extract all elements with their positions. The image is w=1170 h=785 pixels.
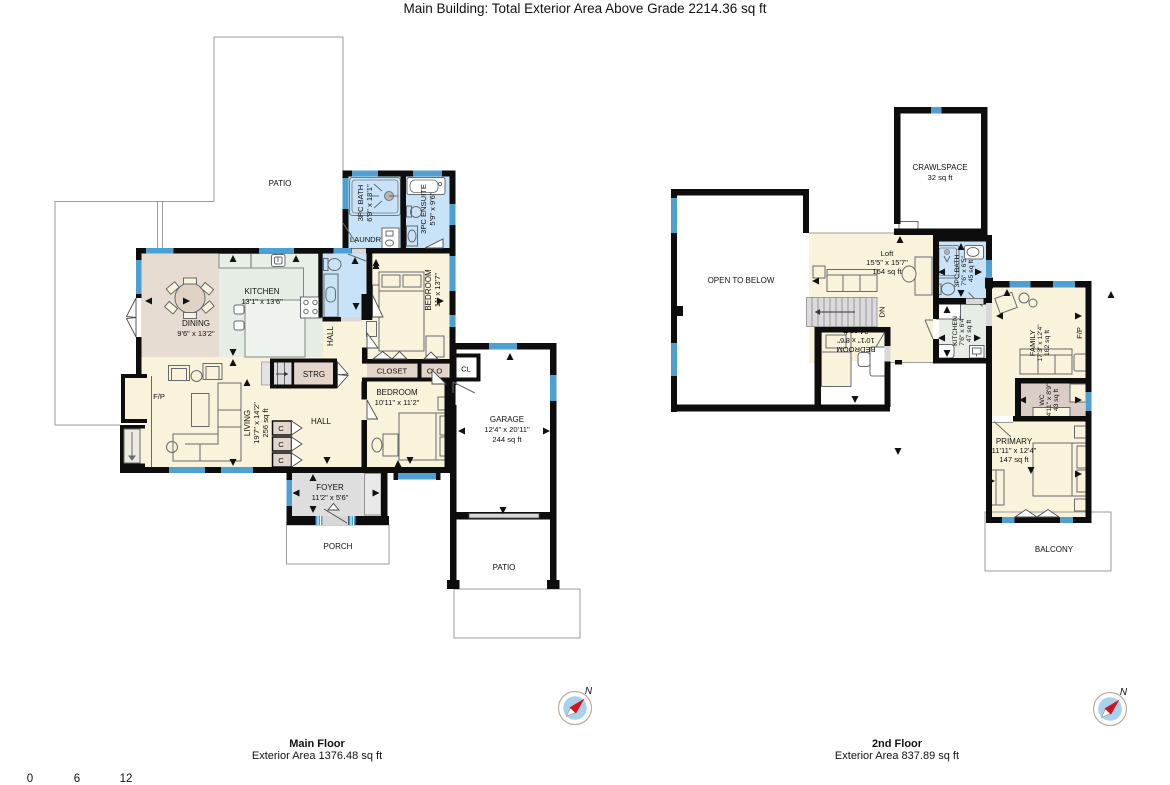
svg-text:10'11" x 11'2": 10'11" x 11'2": [375, 398, 420, 407]
svg-text:6'9" x 18'1": 6'9" x 18'1": [365, 184, 374, 222]
svg-text:47 sq ft: 47 sq ft: [966, 320, 973, 342]
svg-text:45 sq ft: 45 sq ft: [968, 260, 975, 282]
svg-text:Exterior Area 837.89 sq ft: Exterior Area 837.89 sq ft: [835, 750, 959, 762]
svg-text:N: N: [1120, 687, 1128, 698]
svg-text:7'6" x 6'5": 7'6" x 6'5": [961, 256, 968, 286]
svg-text:0: 0: [27, 773, 33, 785]
svg-text:162 sq ft: 162 sq ft: [1044, 330, 1051, 356]
svg-text:164 sq ft: 164 sq ft: [872, 267, 902, 276]
svg-text:12: 12: [120, 773, 133, 785]
svg-text:FOYER: FOYER: [316, 483, 344, 492]
svg-text:11'11" x 12'4": 11'11" x 12'4": [992, 446, 1037, 455]
svg-text:Loft: Loft: [881, 249, 895, 258]
svg-text:KITCHEN: KITCHEN: [952, 316, 959, 346]
svg-text:CL: CL: [461, 365, 471, 374]
svg-text:Exterior Area 1376.48 sq ft: Exterior Area 1376.48 sq ft: [252, 750, 382, 762]
svg-text:43 sq ft: 43 sq ft: [1053, 389, 1060, 411]
svg-text:BEDROOM: BEDROOM: [376, 388, 418, 397]
svg-text:F/P: F/P: [1075, 327, 1084, 339]
svg-text:BALCONY: BALCONY: [1035, 545, 1074, 554]
svg-text:PATIO: PATIO: [269, 179, 292, 188]
svg-text:12'4" x 20'11": 12'4" x 20'11": [484, 425, 530, 434]
svg-text:F/P: F/P: [153, 392, 165, 401]
svg-text:HALL: HALL: [311, 417, 332, 426]
svg-text:GARAGE: GARAGE: [490, 415, 524, 424]
svg-text:19'7" x 14'2": 19'7" x 14'2": [252, 402, 261, 444]
svg-text:HALL: HALL: [326, 325, 335, 346]
svg-text:3PC ENSUITE: 3PC ENSUITE: [419, 184, 428, 234]
svg-text:DN: DN: [878, 307, 887, 318]
svg-text:PRIMARY: PRIMARY: [996, 437, 1033, 446]
svg-text:256 sq ft: 256 sq ft: [261, 408, 270, 438]
svg-text:15'5" x 15'7": 15'5" x 15'7": [866, 258, 908, 267]
svg-text:7'6" x 6'4": 7'6" x 6'4": [959, 316, 966, 346]
svg-text:10'1" x 8'6": 10'1" x 8'6": [837, 336, 875, 345]
svg-text:WC: WC: [1039, 394, 1046, 405]
svg-text:CRAWLSPACE: CRAWLSPACE: [912, 163, 967, 172]
svg-text:17'3" x 12'4": 17'3" x 12'4": [1037, 324, 1044, 362]
svg-text:DINING: DINING: [182, 319, 210, 328]
svg-text:2nd Floor: 2nd Floor: [872, 738, 923, 750]
svg-text:C: C: [278, 424, 284, 433]
svg-text:PATIO: PATIO: [493, 563, 516, 572]
svg-text:PORCH: PORCH: [324, 542, 353, 551]
svg-text:C: C: [278, 456, 284, 465]
svg-text:9'6" x 13'2": 9'6" x 13'2": [177, 329, 215, 338]
svg-text:Main Building: Total Exterior: Main Building: Total Exterior Area Above…: [404, 1, 767, 16]
svg-text:244 sq ft: 244 sq ft: [492, 435, 522, 444]
svg-text:Main Floor: Main Floor: [289, 738, 345, 750]
svg-text:OPEN TO BELOW: OPEN TO BELOW: [708, 276, 775, 285]
svg-text:4'11" x 8'9": 4'11" x 8'9": [1046, 383, 1053, 417]
svg-text:5'9" x 9'6": 5'9" x 9'6": [428, 192, 437, 226]
svg-text:C: C: [278, 440, 284, 449]
svg-text:3PC BATH: 3PC BATH: [954, 255, 961, 288]
svg-text:147 sq ft: 147 sq ft: [999, 455, 1029, 464]
svg-text:11'2" x 5'6": 11'2" x 5'6": [312, 493, 349, 502]
svg-text:N: N: [585, 686, 593, 697]
svg-text:BEDROOM: BEDROOM: [836, 345, 875, 354]
svg-text:BEDROOM: BEDROOM: [424, 269, 433, 311]
svg-text:CLOSET: CLOSET: [377, 367, 408, 376]
svg-text:FAMILY: FAMILY: [1028, 330, 1037, 356]
svg-text:3PC BATH: 3PC BATH: [356, 185, 365, 222]
svg-text:13'1" x 13'6": 13'1" x 13'6": [241, 297, 283, 306]
svg-text:LIVING: LIVING: [243, 410, 252, 436]
svg-text:STRG: STRG: [303, 370, 325, 379]
svg-text:32 sq ft: 32 sq ft: [928, 173, 954, 182]
svg-text:6: 6: [74, 773, 80, 785]
svg-text:KITCHEN: KITCHEN: [244, 287, 279, 296]
